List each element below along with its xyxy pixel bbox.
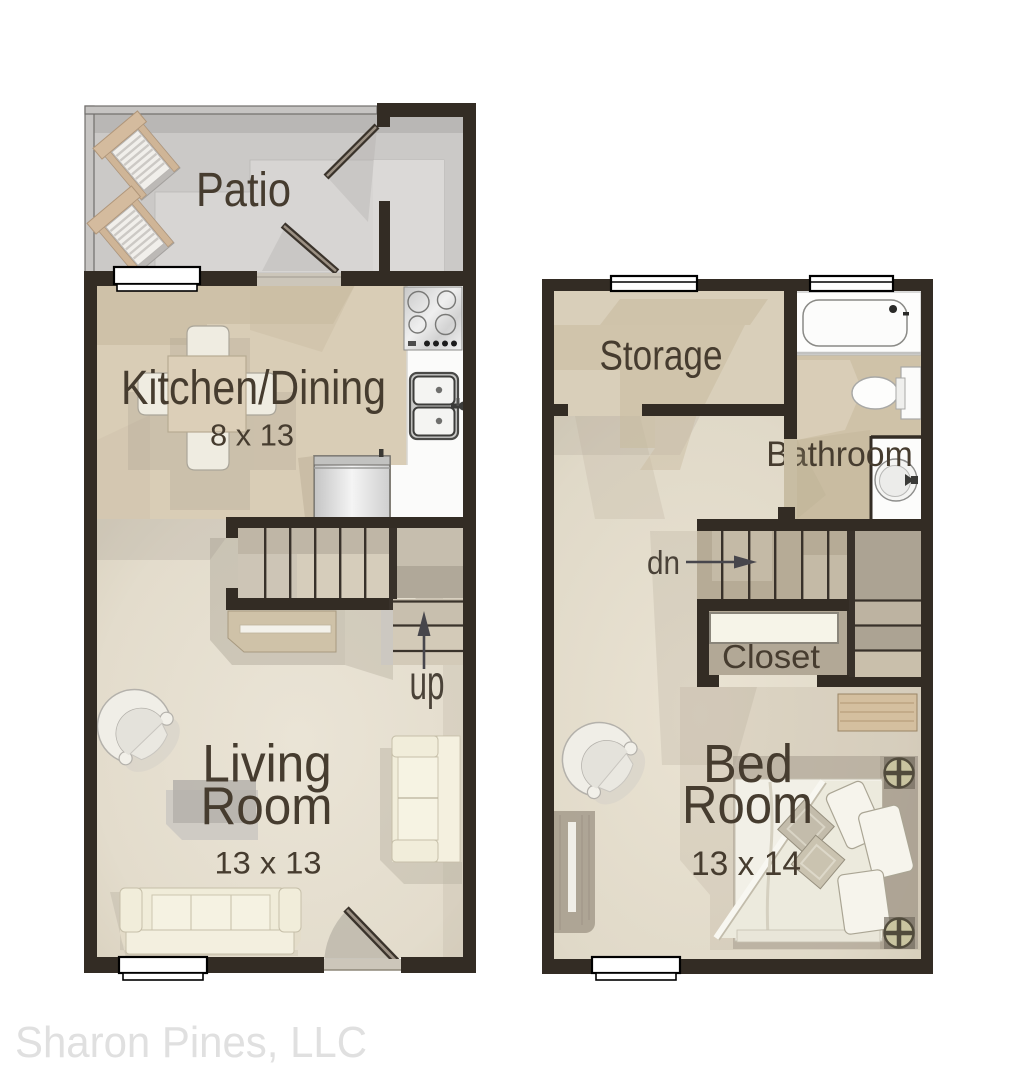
svg-text:up: up xyxy=(410,657,445,710)
svg-text:Sharon Pines, LLC: Sharon Pines, LLC xyxy=(15,1018,367,1067)
svg-text:Room: Room xyxy=(201,777,333,836)
svg-text:Closet: Closet xyxy=(722,638,820,675)
svg-text:13 x 14: 13 x 14 xyxy=(691,845,801,883)
svg-text:Patio: Patio xyxy=(196,164,291,217)
svg-text:13 x 13: 13 x 13 xyxy=(215,845,322,881)
svg-text:dn: dn xyxy=(647,544,680,581)
svg-text:Storage: Storage xyxy=(600,332,723,379)
svg-text:Room: Room xyxy=(682,775,813,835)
svg-text:8 x 13: 8 x 13 xyxy=(210,419,294,453)
svg-text:Kitchen/Dining: Kitchen/Dining xyxy=(121,362,386,415)
